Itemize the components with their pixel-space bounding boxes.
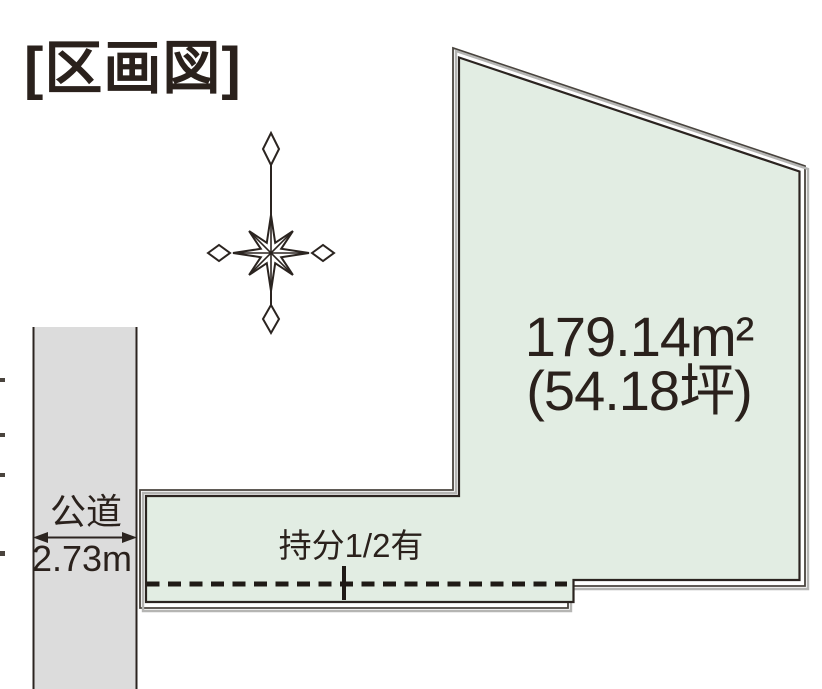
compass-rose-icon xyxy=(208,133,334,333)
plot-map-drawing: [区画図] 179.14m² (54.18坪) 公道 2.73m 持分1/2有 xyxy=(0,0,822,689)
plot-map-page: [区画図] 179.14m² (54.18坪) 公道 2.73m 持分1/2有 xyxy=(0,0,822,689)
page-title: [区画図] xyxy=(24,36,242,101)
ownership-share-label: 持分1/2有 xyxy=(279,527,424,564)
left-edge-tick xyxy=(0,433,5,437)
left-edge-tick xyxy=(0,551,5,556)
left-edge-ticks xyxy=(0,378,5,556)
compass-west-diamond xyxy=(208,245,230,261)
compass-south-diamond xyxy=(263,305,279,333)
compass-north-diamond xyxy=(263,133,279,165)
compass-east-diamond xyxy=(312,245,334,261)
road-width-label: 2.73m xyxy=(32,538,132,579)
left-edge-tick xyxy=(0,378,5,382)
parcel-area-tsubo: (54.18坪) xyxy=(526,359,751,422)
compass-star-spokes xyxy=(233,215,309,291)
left-edge-tick xyxy=(0,473,5,477)
road-label: 公道 xyxy=(50,491,122,532)
